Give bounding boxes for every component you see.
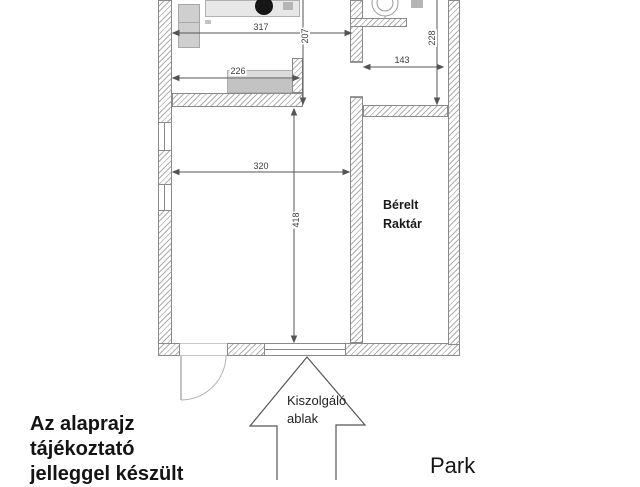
- left-wall-cabinet-divider: [178, 22, 200, 23]
- wall-storage-top: [363, 105, 448, 117]
- wall-kitchen-stub: [292, 58, 303, 93]
- park-label: Park: [430, 453, 475, 479]
- service-window-line2: ablak: [287, 410, 346, 428]
- wall-wc-partition: [350, 18, 407, 27]
- disclaimer-note: Az alaprajz tájékoztató jelleggel készül…: [30, 412, 183, 487]
- wall-bottom-left-stub: [158, 343, 180, 356]
- disclaimer-line1: Az alaprajz: [30, 412, 183, 437]
- wall-left-upper: [158, 0, 172, 123]
- dim-label-228: 228: [427, 29, 437, 46]
- floor-plan-canvas: 317 207 226 320 418 143 228 Bérelt Raktá…: [0, 0, 640, 480]
- wall-bottom-middle: [227, 343, 265, 356]
- dim-label-317: 317: [252, 22, 269, 32]
- dim-label-143: 143: [393, 55, 410, 65]
- left-window-lower: [158, 185, 172, 210]
- kitchen-counter-tick: [205, 20, 211, 24]
- wall-left-lower: [158, 210, 172, 345]
- dim-label-226: 226: [229, 66, 246, 76]
- service-window-line1: Kiszolgáló: [287, 392, 346, 410]
- disclaimer-line2: tájékoztató: [30, 437, 183, 462]
- middle-wall-door-opening: [350, 62, 363, 97]
- service-window-label: Kiszolgáló ablak: [287, 392, 346, 428]
- wc-basin-inner: [377, 0, 393, 11]
- left-wall-cabinet: [178, 4, 200, 48]
- wall-middle-lower: [350, 97, 363, 343]
- wall-kitchen-bottom: [172, 93, 303, 107]
- entry-door-swing-arc: [181, 355, 226, 400]
- rented-storage-label: Bérelt Raktár: [383, 196, 422, 234]
- wc-basin-outer: [372, 0, 398, 16]
- wall-bottom-right: [345, 343, 460, 356]
- rented-storage-line2: Raktár: [383, 215, 422, 234]
- dim-label-207: 207: [300, 27, 310, 44]
- dim-label-320: 320: [252, 161, 269, 171]
- service-window-opening: [265, 343, 345, 356]
- wall-right-outer: [448, 0, 460, 345]
- dim-label-418: 418: [291, 211, 301, 228]
- wc-small-appliance: [411, 0, 423, 8]
- wall-middle-upper: [350, 0, 363, 62]
- disclaimer-line3: jelleggel készült: [30, 462, 183, 487]
- wall-left-middle: [158, 150, 172, 185]
- rented-storage-line1: Bérelt: [383, 196, 422, 215]
- kitchen-top-counter-appliance: [283, 2, 293, 10]
- entry-door-opening: [180, 343, 227, 356]
- left-window-upper: [158, 123, 172, 150]
